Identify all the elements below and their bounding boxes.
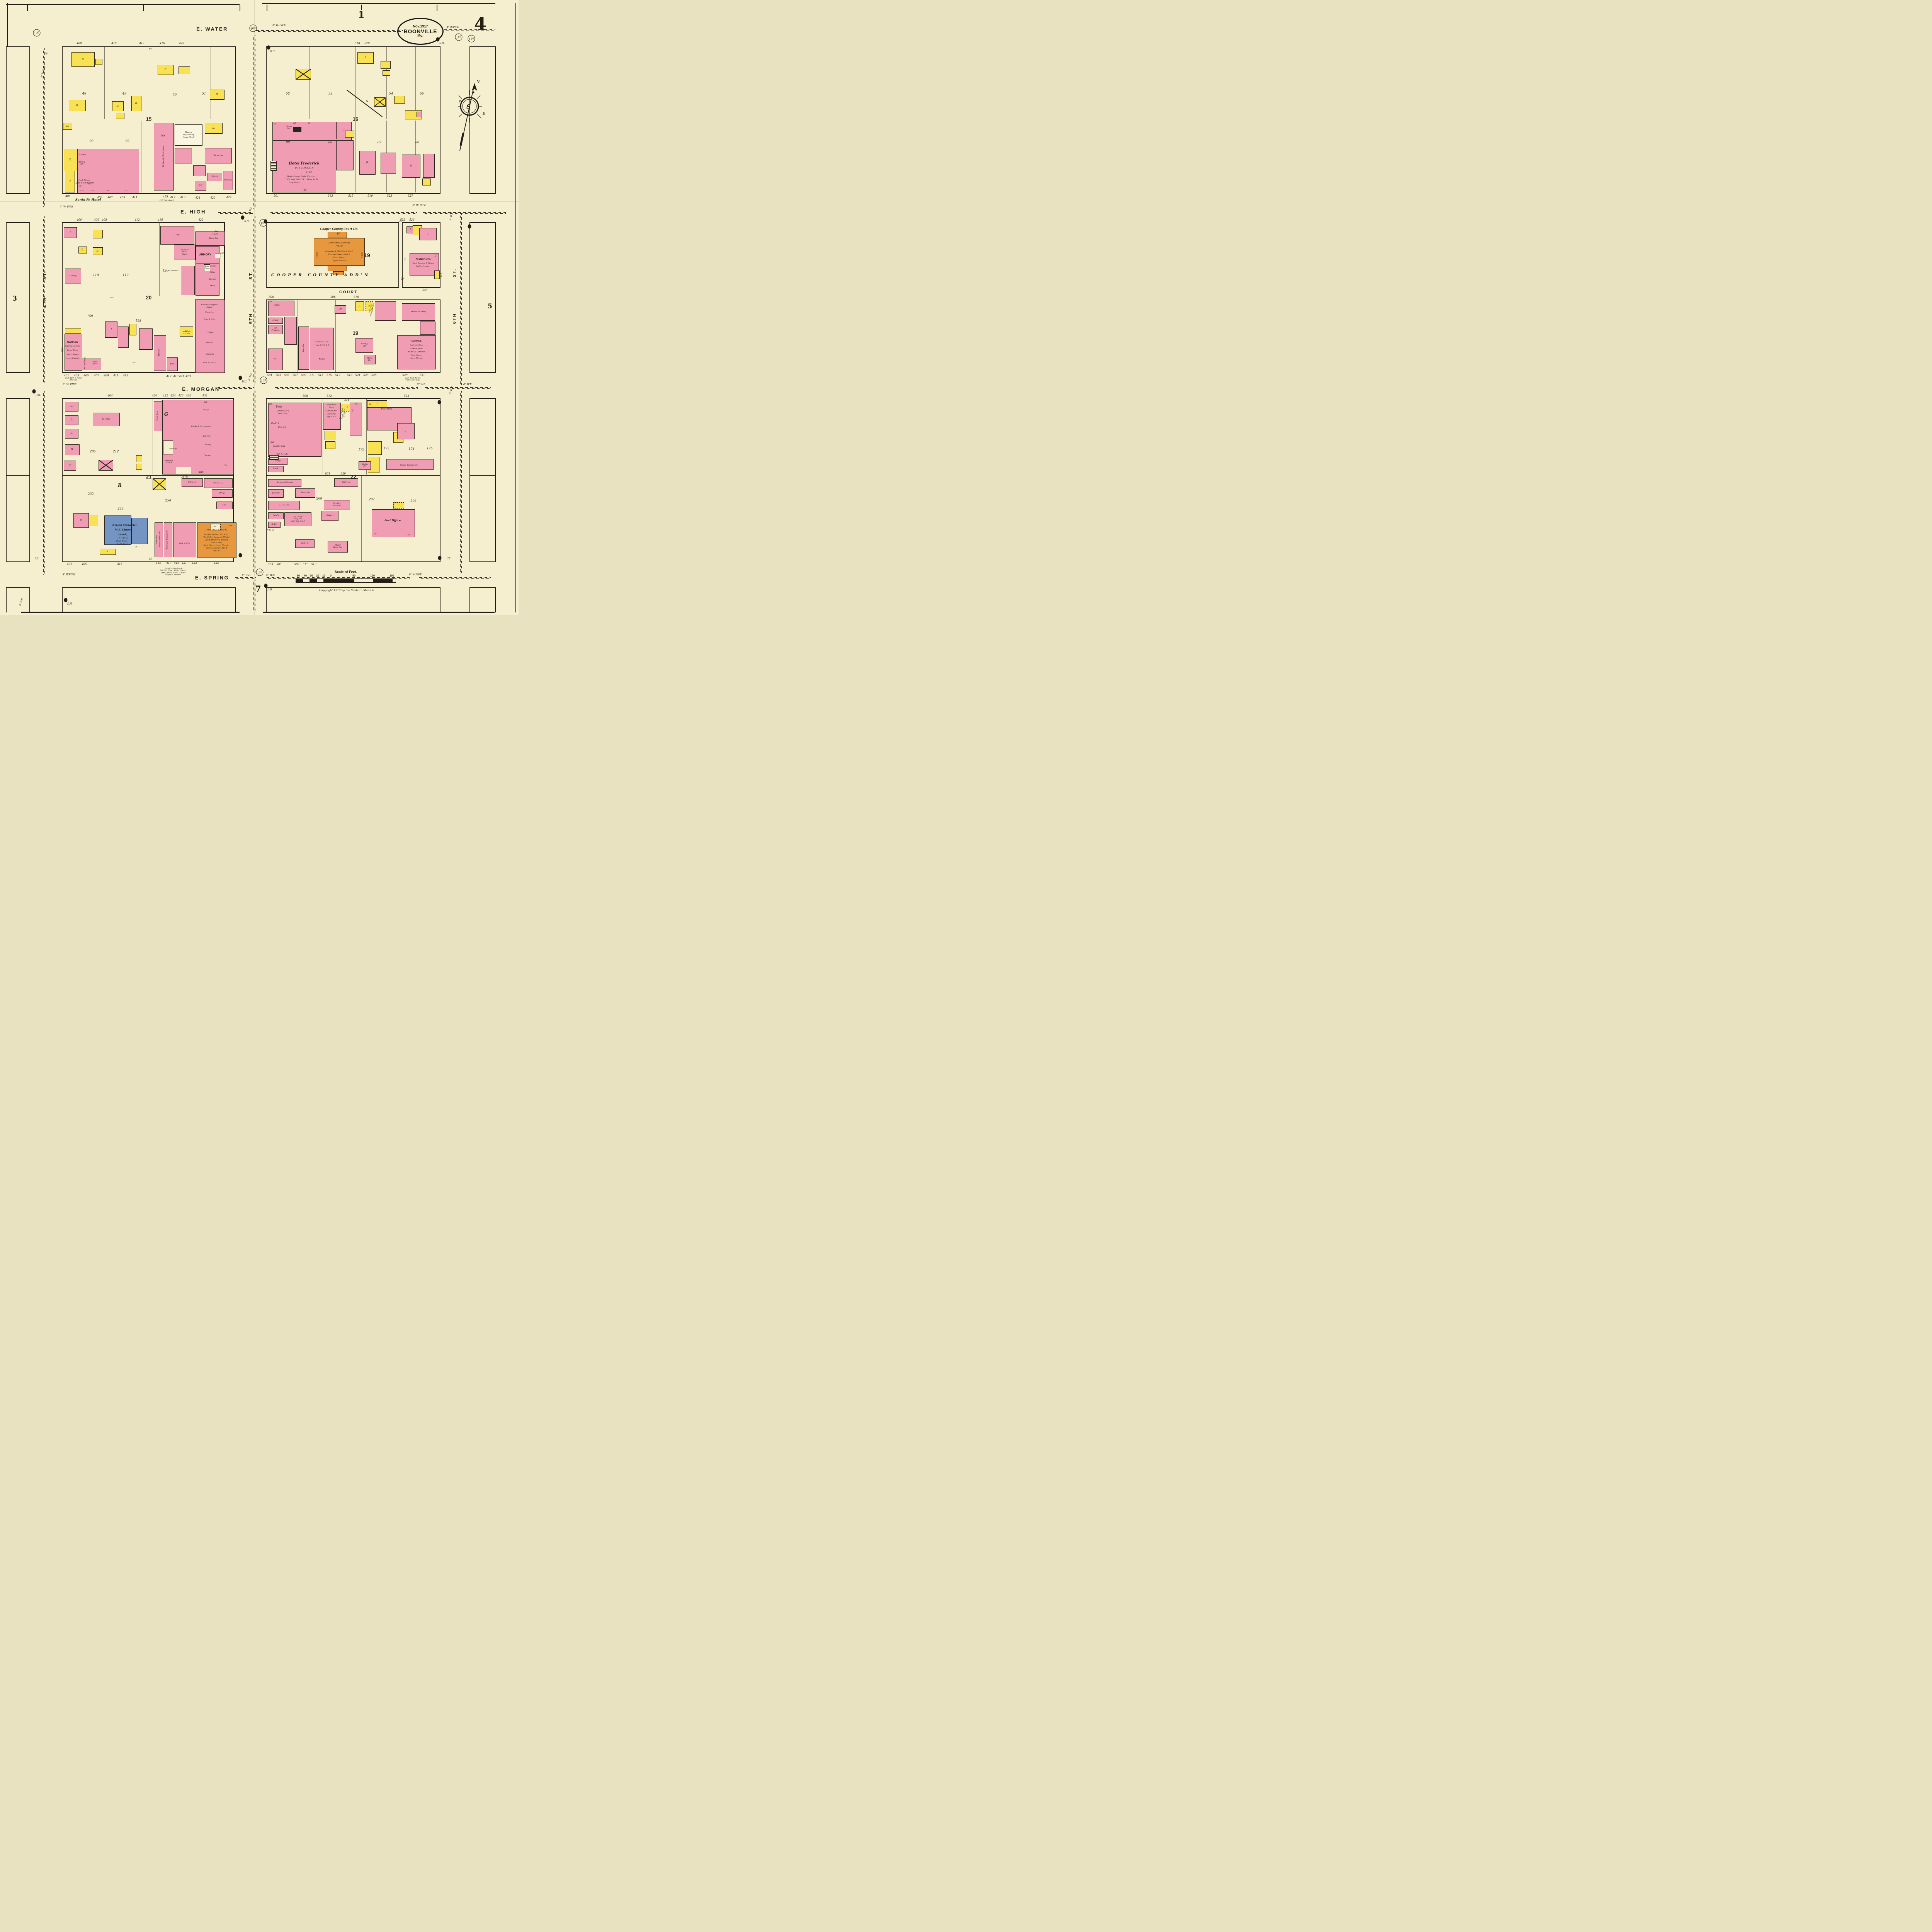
label-90: 90 [161, 134, 165, 138]
label-52: 52 [286, 92, 290, 95]
label-south: (South) [118, 534, 127, 536]
label-post-office: Post Office [384, 519, 401, 522]
building-buggy-repository-iron-clad: Buggy Repository (Iron Clad) [175, 124, 202, 146]
building-off: Off. [335, 305, 346, 314]
building-sal-printing: Sal. Printing [268, 325, 283, 334]
building-carp: Carp. [160, 226, 194, 245]
label-15: 15' [148, 48, 152, 51]
label-420: 420 [152, 394, 157, 397]
label-174: 174 [408, 447, 414, 451]
label-st: ST. [43, 270, 48, 279]
label-517: 517 [335, 374, 340, 377]
label-boarding: Boarding [381, 407, 392, 410]
label-bank: Bank [274, 304, 280, 306]
label-cement-flr: Cement Flr [327, 410, 337, 412]
building-35 [345, 131, 354, 138]
label-511: 511 [310, 374, 315, 377]
label-4th: 4TH [43, 297, 48, 308]
map-line-23 [104, 47, 105, 119]
building-7: 7 [393, 502, 404, 509]
building-87 [375, 301, 396, 321]
map-line-28 [355, 47, 356, 119]
hydrant-dot-6 [32, 389, 36, 394]
label-6-w-p: 6" W.P. [248, 372, 253, 381]
label-2-22: 2 22' [124, 190, 129, 192]
label-423: 423 [192, 561, 197, 565]
scale-tick-8: 150 [389, 575, 394, 577]
label-cab-t-shop: Cab't Shop [156, 411, 158, 420]
building-d: D. [355, 301, 364, 311]
building-b-s: B.&S. [268, 522, 281, 528]
label-1: 1 [358, 9, 365, 20]
label-heat-steam: Heat: Steam- [333, 257, 345, 259]
label-cobbler-2nd: Cobbler 2nd [273, 446, 285, 448]
label-21: 21 [146, 474, 151, 480]
label-2b: 2B [269, 403, 272, 406]
building-83 [310, 328, 334, 370]
label-500: 500 [269, 296, 274, 299]
label-417: 417 [166, 561, 171, 565]
map-line-27 [309, 47, 310, 119]
label-plumbing: Plumbing [205, 312, 214, 314]
building-d-g: D.G. [268, 349, 283, 370]
block-outline-8 [6, 46, 30, 194]
water-main-dashed-15 [460, 213, 462, 385]
label-sal: Sal. [204, 401, 207, 404]
label-18-to-eaves: 18' to Eaves [117, 537, 128, 539]
hydrant-dot-9 [264, 584, 268, 588]
building-81 [284, 317, 297, 345]
label-75: 75' [447, 557, 451, 560]
label-527: 527 [422, 289, 427, 292]
map-line-0 [6, 4, 240, 5]
label-exposed-steel-in-roof: Exposed Steel in Roof- [328, 254, 350, 256]
building-ware-ho: Ware Ho [182, 478, 203, 487]
building-72 [434, 270, 440, 279]
label-garage: GARAGE [67, 341, 78, 344]
label-427: 427 [226, 196, 231, 199]
building-8 [116, 113, 124, 119]
label-2-v-p-with-100-c-r-l-hose-ea-f: 2" V.P. with 100' C.R.L. Hose Ea.Fl. [284, 179, 319, 181]
building-100 [136, 455, 142, 462]
label-831: 831 [325, 472, 330, 475]
label-m-e-church: M.E. Church [115, 529, 133, 532]
label-93: 93 [90, 139, 94, 143]
label-508: 508 [303, 395, 308, 398]
building-122 [268, 403, 321, 457]
label-heat-stoves: Heat: Stoves [78, 179, 90, 181]
label-519: 519 [347, 374, 352, 377]
label-515: 515 [327, 374, 332, 377]
label-415: 415 [156, 561, 161, 565]
water-main-dashed-4 [423, 212, 506, 214]
label-407: 407 [94, 374, 99, 377]
label-205: 205 [90, 449, 95, 453]
label-2b: 2B [369, 404, 372, 406]
svg-text:W: W [459, 100, 463, 104]
label-3b: 3B [308, 122, 311, 125]
label-office: Office [207, 307, 213, 309]
building-d: D. [69, 100, 86, 111]
building-126 [325, 431, 336, 440]
hydrant-dot-2 [241, 216, 245, 220]
block-outline-17 [469, 587, 496, 612]
label-billiards: Billiards [206, 354, 214, 356]
building-d: D. [65, 429, 78, 439]
building-d: D. [158, 65, 174, 75]
label-20-20-20: 20 20 20 [316, 253, 318, 259]
hydrant-label-1: D.H. [439, 42, 445, 44]
water-main-dashed-13 [253, 391, 255, 573]
building-ware-ho: Ware Ho. [364, 355, 376, 364]
building-cont-g-off: Cont'g Off. [355, 338, 373, 353]
building-2: 2 [64, 461, 76, 471]
label-st: ST. [249, 270, 254, 279]
label-425: 425 [214, 561, 219, 565]
label-520: 520 [364, 42, 369, 45]
label-santa-fe-hotel: Santa Fe Hotel [75, 198, 101, 201]
label-2-v-p: 2" V.P. [306, 172, 312, 174]
building-d: D. [73, 513, 89, 528]
water-main-dashed-3 [270, 212, 417, 214]
scale-tick-2: 30 [310, 575, 313, 577]
label-501: 501 [274, 194, 279, 197]
label-fire-dept: Fire Dept [156, 535, 158, 544]
scale-cell-2 [310, 579, 316, 582]
label-401: 401 [65, 195, 70, 198]
label-523: 523 [363, 374, 368, 377]
hydrant-label-5: D.H. [242, 380, 247, 383]
building-d: D. [93, 247, 103, 255]
hydrant-dot-8 [239, 553, 242, 558]
label-jewelry: Jewelry [203, 435, 210, 438]
building-machine-shop: Machine Shop [402, 303, 435, 321]
label-254: 254 [165, 498, 171, 502]
scale-cell-0 [296, 579, 303, 582]
label-309: 309 [198, 471, 203, 474]
label-5th: 5TH [249, 313, 254, 324]
building-32 [272, 140, 336, 192]
label-8-w-pipe: 8" W. PIPE [63, 383, 77, 386]
label-rest-r-t: Rest'r't [206, 342, 213, 344]
circle-ref-114: 114 [467, 34, 476, 43]
label-barber: Barber [209, 279, 216, 281]
map-line-31 [141, 121, 141, 192]
label-41: 41' [303, 189, 307, 191]
building-1 [95, 59, 102, 65]
hydrant-label-9: D.H. [267, 588, 273, 591]
building-106 [153, 478, 166, 490]
label-526: 526 [407, 42, 412, 45]
label-fac-ty: Fac'ty [329, 406, 334, 408]
label-whol-sale-gro: Whol'sale Gro. [315, 341, 329, 344]
label-419: 419 [174, 561, 179, 565]
building-d: D. [402, 155, 420, 178]
label-405: 405 [82, 563, 87, 566]
label-e-spring: E. SPRING [195, 575, 229, 580]
label-hotel-frederick: Hotel Frederick [289, 162, 320, 166]
label-conf-y: Conf'y [210, 265, 216, 268]
label-20: 20' [399, 219, 403, 222]
label-15: 15 [146, 116, 151, 122]
label-sal: Sal. [214, 231, 218, 233]
building-d: D. [71, 52, 95, 67]
label-7: 7 [255, 585, 261, 595]
label-413: 413 [123, 374, 128, 377]
label-403: 403 [74, 374, 79, 377]
water-main-dashed-1 [444, 29, 495, 31]
label-512: 512 [327, 395, 332, 398]
label-505: 505 [276, 563, 281, 566]
label-232: 232 [88, 492, 94, 495]
label-510: 510 [354, 296, 359, 299]
building-jewelry: Jewelry [268, 489, 284, 498]
label-st: ST. [452, 268, 457, 277]
building-b-s: B.&S. [268, 466, 284, 472]
label-cap-cy-18-cars: Cap'cy 18 Cars [65, 345, 80, 348]
building-d: D. [65, 444, 80, 455]
hydrant-label-6: D.H. [36, 394, 41, 396]
label-off: Off. [79, 185, 82, 187]
scale-cell-1 [303, 579, 310, 582]
building-music: Music [268, 318, 283, 324]
block-outline-9 [6, 222, 30, 373]
label-6th: 6TH [452, 313, 457, 324]
label-rest-r-t: Rest'r't [271, 422, 279, 425]
label-410: 410 [111, 42, 116, 45]
hydrant-dot-5 [239, 376, 242, 380]
label-cooper-county-court-ho: Cooper County Court Ho. [320, 228, 359, 231]
building-128 [350, 403, 362, 435]
map-line-2 [7, 3, 8, 46]
label-sal: Sal. [270, 442, 274, 444]
building-2: 2 [357, 52, 374, 64]
label-317: 317½ [181, 476, 189, 479]
map-line-1 [262, 3, 495, 4]
block-outline-13 [469, 398, 496, 562]
map-line-45 [321, 476, 321, 561]
building-29 [417, 112, 421, 117]
label-424: 424 [170, 394, 175, 397]
label-office: Office [210, 272, 216, 274]
label-6-w-pipe: 6" W.PIPE [409, 573, 422, 577]
label-heat-steam: Heat: Steam- [411, 354, 422, 356]
building-150 [372, 509, 415, 537]
label-404: 404 [107, 394, 112, 397]
building-104 [163, 440, 173, 454]
label-401: 401 [67, 563, 72, 566]
circle-ref-163: 163 [259, 376, 268, 384]
label-tire-vulcaniz-g: Tire Vulcaniz'g [84, 357, 86, 371]
map-line-4 [21, 612, 240, 613]
label-89: 89 [286, 140, 290, 144]
label-53: 53 [328, 92, 332, 95]
label-liquor: Liquor [212, 233, 218, 236]
label-527: 527 [408, 194, 413, 197]
title-state: Mo. [417, 34, 423, 37]
label-heat-steam-light-electric: Heat: Steam: Light Electric:- [287, 176, 315, 178]
scale-tick-4: 10 [322, 575, 325, 577]
water-main-dashed-16 [460, 391, 462, 573]
label-2-20: 2 20' [80, 190, 84, 192]
water-main-dashed-19 [43, 391, 45, 575]
label-513: 513 [318, 374, 323, 377]
label-525: 525 [371, 374, 376, 377]
label-49: 49 [122, 92, 126, 95]
label-406: 406 [94, 218, 99, 221]
label-gasl-tank-pump-290-gal: Gasl. Tank & Pump 290 Gal. [65, 378, 82, 382]
map-line-46 [361, 476, 362, 561]
building-33 [336, 140, 354, 170]
label-516: 516 [344, 398, 349, 401]
water-main-dashed-8 [235, 577, 256, 579]
label-ice-cream: Ice Cream [327, 404, 336, 406]
building-56 [182, 266, 195, 295]
label-15: 15' [149, 558, 152, 560]
hydrant-label-2: D.H. [244, 220, 250, 223]
label-cooper-county-add-n: COOPER COUNTY ADD'N [271, 273, 370, 278]
map-line-11 [437, 5, 437, 11]
building-75 [328, 266, 347, 271]
label-75: 75' [35, 557, 38, 560]
scale-cell-3 [316, 579, 323, 582]
building-112 [90, 515, 98, 526]
label-fire-proof-const-n: (Fire Proof Const'n) [206, 529, 227, 531]
label-16: 16 [353, 116, 358, 122]
label-city-water: City Water- [289, 182, 300, 184]
label-206: 206 [410, 499, 416, 502]
label-55: 55 [420, 92, 424, 95]
label-1913: "1913" [335, 245, 343, 248]
label-207: 207 [369, 497, 374, 501]
building-99 [99, 460, 113, 471]
label-400: 400 [77, 42, 82, 45]
label-501: 501 [267, 374, 272, 377]
label-86: 86 [415, 140, 419, 144]
label-524: 524 [404, 395, 409, 398]
label-408: 408 [102, 218, 107, 221]
building-d: D. [78, 247, 87, 253]
label-ware-ho-d-g-cl: Ware Ho D.G.&Cl. [183, 331, 190, 335]
building-gen-l-s: Gen'l S. [295, 539, 315, 548]
map-line-39 [153, 399, 153, 474]
label-off: Off. [352, 409, 354, 412]
label-419: 419 [180, 196, 185, 199]
label-eng-6-h-p: Eng. 6 H.P. [327, 416, 336, 418]
map-line-30 [415, 47, 416, 119]
label-reinforced-conc-flrs-rf: Reinforced Conc. Flrs & Rf. [204, 534, 228, 536]
building-1: 1 [397, 423, 415, 439]
building-101 [136, 464, 142, 470]
label-in-oils-2d-cement-d: in Oils 2d Cement'd [408, 351, 425, 353]
label-clo: Clo. [229, 525, 233, 527]
building-hay-etc-ware-ho: Hay Etc. Ware Ho [324, 500, 350, 510]
building-bakery: Bakery [321, 511, 338, 521]
building-carri-g: Carri'g [65, 269, 81, 284]
label-48: 48' [337, 232, 340, 235]
label-e-morgan: E. MORGAN [182, 386, 220, 392]
label-519: 519 [367, 194, 372, 197]
label-412: 412 [139, 42, 144, 45]
scale-tick-5: 0 [330, 575, 332, 577]
map-line-9 [267, 5, 267, 11]
building-d: D. [65, 402, 78, 412]
map-line-7 [143, 5, 144, 11]
label-409: 409 [120, 196, 125, 199]
label-503: 503 [276, 374, 281, 377]
block-outline-12 [469, 222, 496, 373]
label-420: 420 [179, 42, 184, 45]
building-24 [381, 61, 391, 69]
label-401: 401 [64, 374, 69, 377]
label-cement-floor: Cement Floor [410, 348, 422, 350]
building-ware-ho: Ware Ho. [205, 148, 232, 163]
building-weekly-n: Weekly (N) [359, 461, 371, 470]
label-in-parts-1-2: in parts 1½ & 2 [315, 344, 329, 346]
map-line-25 [178, 47, 178, 119]
label-steel-in-roof: Steel in Roof- [211, 542, 223, 544]
hydrant-dot-10 [64, 598, 68, 602]
building-105 [176, 467, 191, 474]
label-concrete-tile-flrs-roof: Concrete & Tile Flrs & Roof- [325, 251, 354, 253]
map-line-20 [469, 297, 496, 297]
map-line-21 [6, 475, 30, 476]
label-20: 20 [146, 294, 151, 300]
building-77 [268, 301, 294, 316]
label-2-20: 2 20' [90, 190, 95, 192]
label-sal: Sal. [224, 464, 228, 466]
label-negro-tenements: Negro Tenements [400, 464, 417, 467]
building-d: D. [210, 90, 224, 100]
hydrant-dot-3 [264, 219, 267, 224]
building-ware-ho: Ware Ho [295, 488, 315, 498]
label-old-lumber: Old Lumber [167, 270, 179, 272]
water-main-dashed-9 [267, 577, 410, 579]
title-city: BOONVILLE [404, 29, 437, 34]
hydrant-dot-1 [436, 37, 440, 42]
building-drugs: Drugs [212, 489, 233, 498]
label-511: 511 [303, 563, 308, 566]
label-lights-electric: Lights Electric [117, 543, 130, 545]
label-515: 515 [348, 194, 353, 197]
hydrant-dot-11 [438, 556, 442, 560]
building-d: D. [112, 101, 124, 111]
building-26 [374, 97, 386, 107]
label-ware-ho: Ware Ho [169, 448, 177, 450]
building-127 [325, 441, 335, 449]
label-hall-3rd: Hall 3rd [278, 427, 286, 429]
label-6-w-pipe: 6" W. PIPE [60, 206, 73, 209]
building-118 [173, 522, 196, 557]
label-175: 175 [427, 446, 432, 450]
label-416: 416 [158, 218, 163, 221]
label-523: 523 [387, 194, 392, 197]
label-50: 50 [173, 93, 177, 96]
label-509: 509 [301, 374, 306, 377]
building-1: 1 [419, 228, 437, 240]
building-11 [77, 149, 139, 193]
building-lumber-paint-glass: Lumber Paint Glass [174, 245, 196, 260]
label-423: 423 [210, 196, 215, 199]
label-506: 506 [330, 296, 335, 299]
label-22: 22 [351, 474, 356, 480]
label-233: 233 [117, 507, 123, 510]
label-ware-rm: Ware-Rm [209, 238, 218, 240]
map-line-6 [27, 5, 28, 11]
label-variety: Variety [204, 444, 211, 446]
label-bl-sm-mach-shop: Bl. Sm. & Mach. Shop [163, 146, 165, 167]
label-nelson-memorial: Nelson Memorial [112, 524, 137, 527]
